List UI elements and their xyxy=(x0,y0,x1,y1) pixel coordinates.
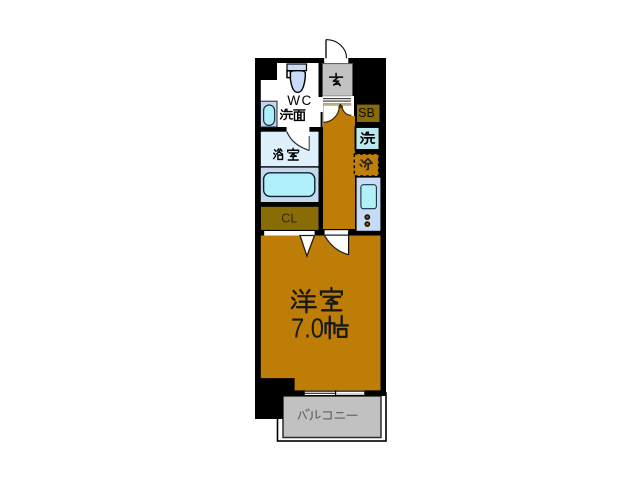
svg-text:SB: SB xyxy=(358,106,375,120)
svg-text:7.0: 7.0 xyxy=(291,313,324,344)
svg-text:WC: WC xyxy=(287,93,313,108)
svg-text:CL: CL xyxy=(281,212,297,226)
